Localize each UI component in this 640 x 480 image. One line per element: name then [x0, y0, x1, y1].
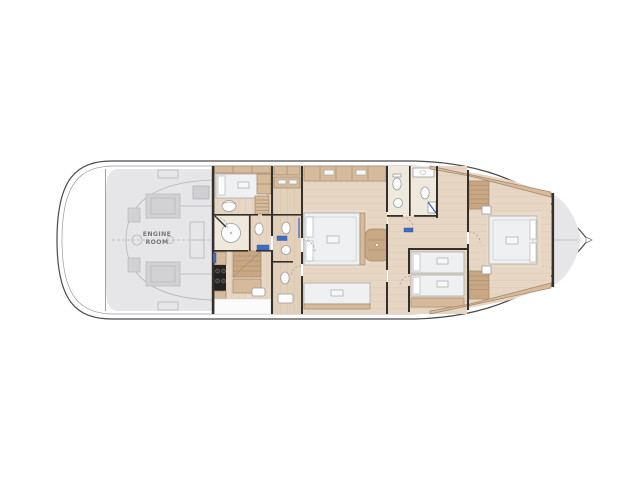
toilet-fixture: [255, 223, 263, 235]
foyer-stairs-up: [469, 181, 489, 209]
nightstand: [482, 206, 491, 214]
crew-and-galley-section: [214, 166, 271, 314]
master-bed: [303, 210, 367, 268]
sink-fixture: [278, 294, 293, 303]
guest-cabin: [411, 252, 464, 307]
bathroom-port-left: [388, 166, 409, 216]
guest-cabinet: [411, 298, 464, 307]
bow-anchor-fitting: [586, 237, 592, 243]
toilet-fixture: [282, 222, 290, 234]
yacht-deck-plan: ENGINE ROOM: [0, 0, 640, 480]
master-wardrobe: [304, 166, 386, 181]
sink-fixture: [252, 288, 265, 296]
vip-storage-steps: [469, 271, 489, 299]
master-sofa: [304, 283, 370, 309]
sink-fixture: [394, 199, 403, 208]
engine-room-label-line1: ENGINE: [143, 231, 172, 238]
forward-accommodation: [388, 166, 467, 314]
bow-locker: [553, 194, 581, 286]
crew-cabinet-strip: [214, 166, 271, 173]
vip-bed: [482, 206, 541, 274]
equipment-label-badge: [277, 236, 287, 241]
deck-plan-canvas: ENGINE ROOM: [0, 0, 640, 480]
toilet-fixture: [281, 272, 289, 284]
bathroom-port-right: [411, 166, 436, 216]
master-vanity: [365, 229, 389, 261]
sink-fixture: [282, 246, 291, 255]
nightstand: [482, 266, 491, 274]
equipment-label-badge: [257, 245, 269, 250]
engine-room: ENGINE ROOM: [106, 169, 213, 311]
equipment-label-badge: [404, 228, 413, 232]
master-cabin: [303, 166, 389, 314]
toilet-fixture: [393, 178, 401, 190]
galley-stairs: [233, 251, 261, 277]
crew-stairs: [255, 196, 269, 214]
equipment-label-badge: [213, 253, 216, 263]
toilet-fixture: [421, 187, 429, 199]
engine-room-label-line2: ROOM: [145, 239, 168, 246]
